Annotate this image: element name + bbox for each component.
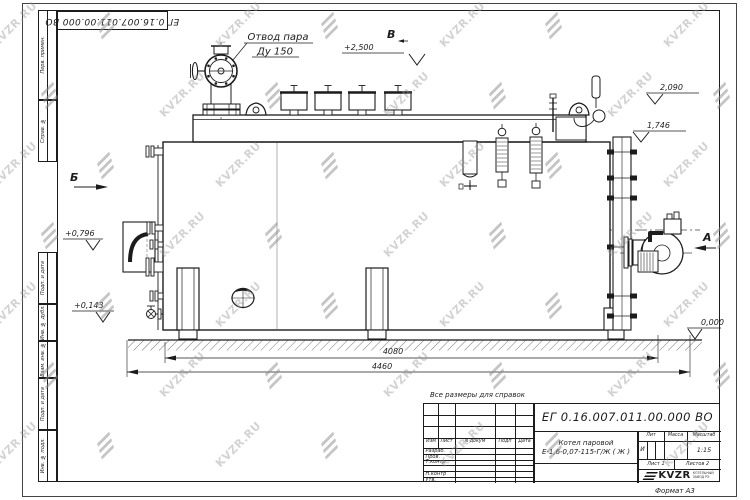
elevation-mark-icon [633,132,649,142]
col-list: Лист [438,440,455,445]
elevation-mark-icon [647,94,663,104]
product-name: Котел паровой [559,440,614,447]
massa-label: Масса [664,434,687,439]
product-model: Е-1,6-0,07-115-Г/Ж ( Ж ) [542,449,630,456]
lifting-lug-right [569,103,589,115]
steam-drum-band [193,115,586,142]
drawing-sheet: Перв. примен. Справ. № Подп. и дата Инв.… [0,0,750,500]
rear-header-box [556,117,586,140]
elevation-steam-top: +2,500 [342,43,425,65]
elevation-mark-icon [86,240,100,250]
svg-text:+2,500: +2,500 [344,43,374,52]
masshtab-label: Масштаб [687,434,721,439]
product-designation: Котел паровой Е-1,6-0,07-115-Г/Ж ( Ж ) [536,433,636,462]
title-block-doc-number: ЕГ 0.16.007.011.00.000 ВО [534,406,721,430]
view-marker-b: Б [70,171,108,190]
col-data: Дата [515,440,534,445]
manufacturer-logo: KVZR КОТЕЛЬНЫЙ ЗАВОД РЭ [638,469,721,482]
view-letter-a: А [702,231,712,244]
view-arrow-right-icon [96,184,108,190]
burner-terminal-box [664,212,681,234]
lifting-lug-left [246,103,266,115]
sheet-cell: Лист 1 [638,462,674,467]
ground-line [128,340,702,351]
elevation-ground: 0,000 [687,318,724,339]
view-marker-a: А [694,231,716,251]
drain-valve [147,306,164,319]
safety-valve-box [314,86,342,116]
elevation-right-upper: 2,090 [646,83,699,104]
view-arrow-left-icon [694,245,706,251]
masshtab-value: 1:15 [687,447,721,454]
safety-valve-boxes [280,86,412,116]
elevation-mark-icon [96,312,110,322]
lit-label: Лит [638,434,664,439]
support-leg-front [177,268,199,339]
lit-value: И [638,447,647,453]
steam-outlet-callout-line2: Ду 150 [256,47,293,58]
row-utv: Утв. [426,478,437,483]
format-label: Формат А3 [655,487,695,495]
svg-text:4460: 4460 [372,362,392,371]
front-nozzles [146,146,163,319]
view-letter-v: В [387,28,395,41]
reference-note: Все размеры для справок [430,391,525,399]
elevation-mark-icon [409,54,425,65]
steam-outlet-callout-line1: Отвод пара [248,32,309,43]
elevation-left-lower: +0,143 [72,301,114,322]
safety-valve-box [348,86,376,116]
svg-text:0,000: 0,000 [701,318,724,327]
safety-valve-box [384,86,412,116]
svg-text:2,090: 2,090 [660,83,683,92]
support-leg-middle [366,268,388,339]
col-podp: Подп [495,440,515,445]
svg-text:1,746: 1,746 [647,121,670,130]
svg-text:+0,143: +0,143 [74,301,104,310]
col-izm: Изм [424,440,438,445]
rear-flange [607,137,637,330]
logo-brand: KVZR [658,471,690,481]
view-arrow-small-icon [398,39,404,43]
view-marker-v: В [387,28,408,43]
view-letter-b: Б [70,171,78,184]
elevation-right-lower: 1,746 [633,121,686,142]
motor-fins [638,251,658,272]
sheets-cell: Листов 2 [674,462,721,467]
callout-leader [233,43,247,60]
title-block: ЕГ 0.16.007.011.00.000 ВО Котел паровой … [423,403,720,482]
logo-subtitle: КОТЕЛЬНЫЙ ЗАВОД РЭ [693,472,714,479]
svg-text:4080: 4080 [383,347,403,356]
safety-valve-box [280,86,308,116]
valve-handwheel [191,63,206,80]
row-tkontr: Т.контр [426,460,446,465]
elevation-left-upper: +0,796 [63,229,103,250]
logo-spring-icon [643,471,659,480]
svg-text:+0,796: +0,796 [65,229,95,238]
col-n-dokum: N докум [455,440,495,445]
